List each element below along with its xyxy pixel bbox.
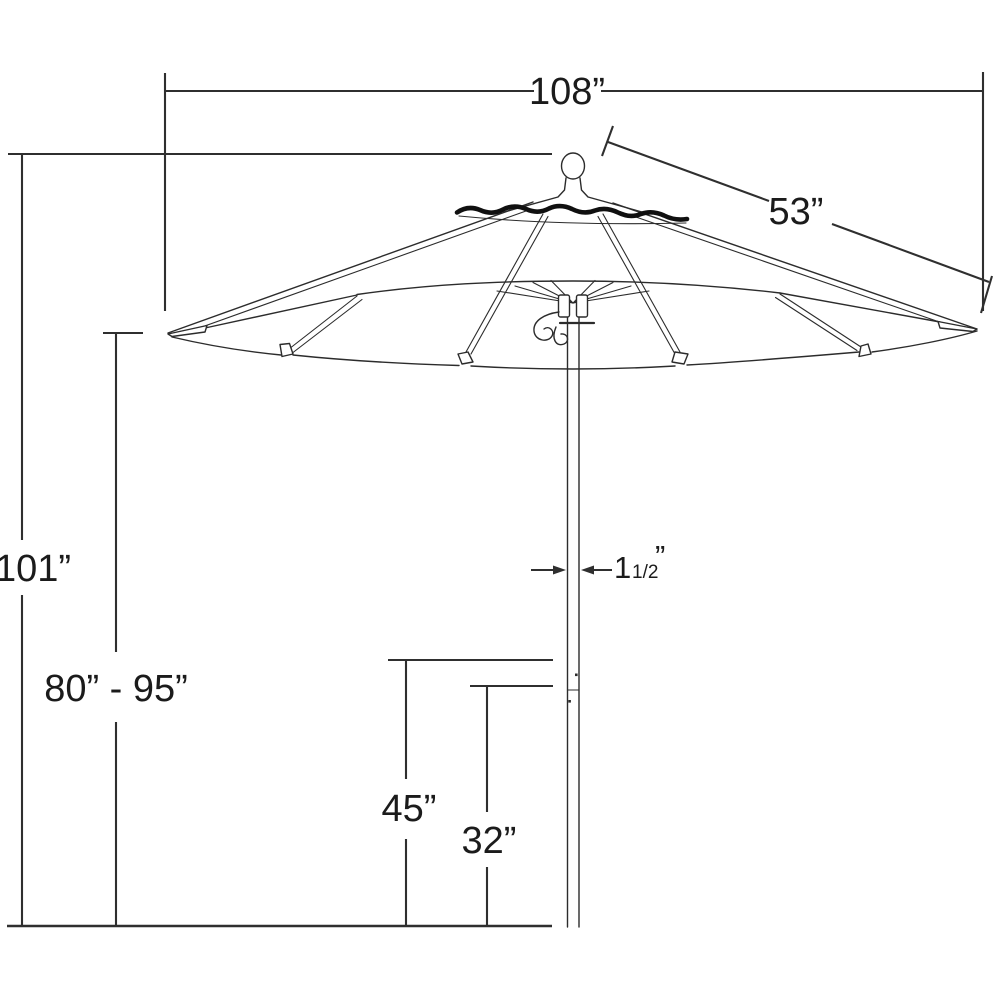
hub-struts xyxy=(497,281,649,304)
canopy-back-edge xyxy=(357,281,780,295)
canopy-junction-ribs xyxy=(280,294,871,357)
hub xyxy=(497,281,649,324)
dimension-total-height: 101” xyxy=(0,154,552,926)
height-range-label: 80” - 95” xyxy=(44,668,188,710)
vent-band xyxy=(457,206,687,224)
arrow-left-icon xyxy=(581,566,594,575)
canopy-top-edge-ribs xyxy=(168,202,977,335)
dimension-lower-clearance: 45” xyxy=(382,660,553,926)
dimension-table-clearance: 32” xyxy=(462,686,553,926)
umbrella-dimension-diagram: 108” 53” 101” 80” - 95” xyxy=(0,0,1000,1000)
umbrella-drawing xyxy=(168,153,977,927)
table-clearance-label: 32” xyxy=(462,820,517,862)
rib-length-label: 53” xyxy=(769,191,824,233)
canopy-width-label: 108” xyxy=(529,71,605,113)
pole-diameter-unit: ” xyxy=(655,539,665,574)
dimension-pole-diameter: 1 1/2 ” xyxy=(531,539,665,585)
hub-block-left xyxy=(559,295,570,317)
pole-diameter-whole: 1 xyxy=(614,550,631,585)
dimension-canopy-width: 108” xyxy=(165,71,983,311)
lower-clearance-label: 45” xyxy=(382,788,437,830)
pole xyxy=(568,300,580,927)
dimension-height-range: 80” - 95” xyxy=(44,333,188,926)
arrow-right-icon xyxy=(553,566,566,575)
finial-ball xyxy=(562,153,585,179)
diagram-canvas: 108” 53” 101” 80” - 95” xyxy=(0,0,1000,1000)
hub-block-right xyxy=(577,295,588,317)
pole-joint xyxy=(568,674,580,703)
total-height-label: 101” xyxy=(0,548,71,590)
canopy-front-ribs xyxy=(458,214,688,364)
